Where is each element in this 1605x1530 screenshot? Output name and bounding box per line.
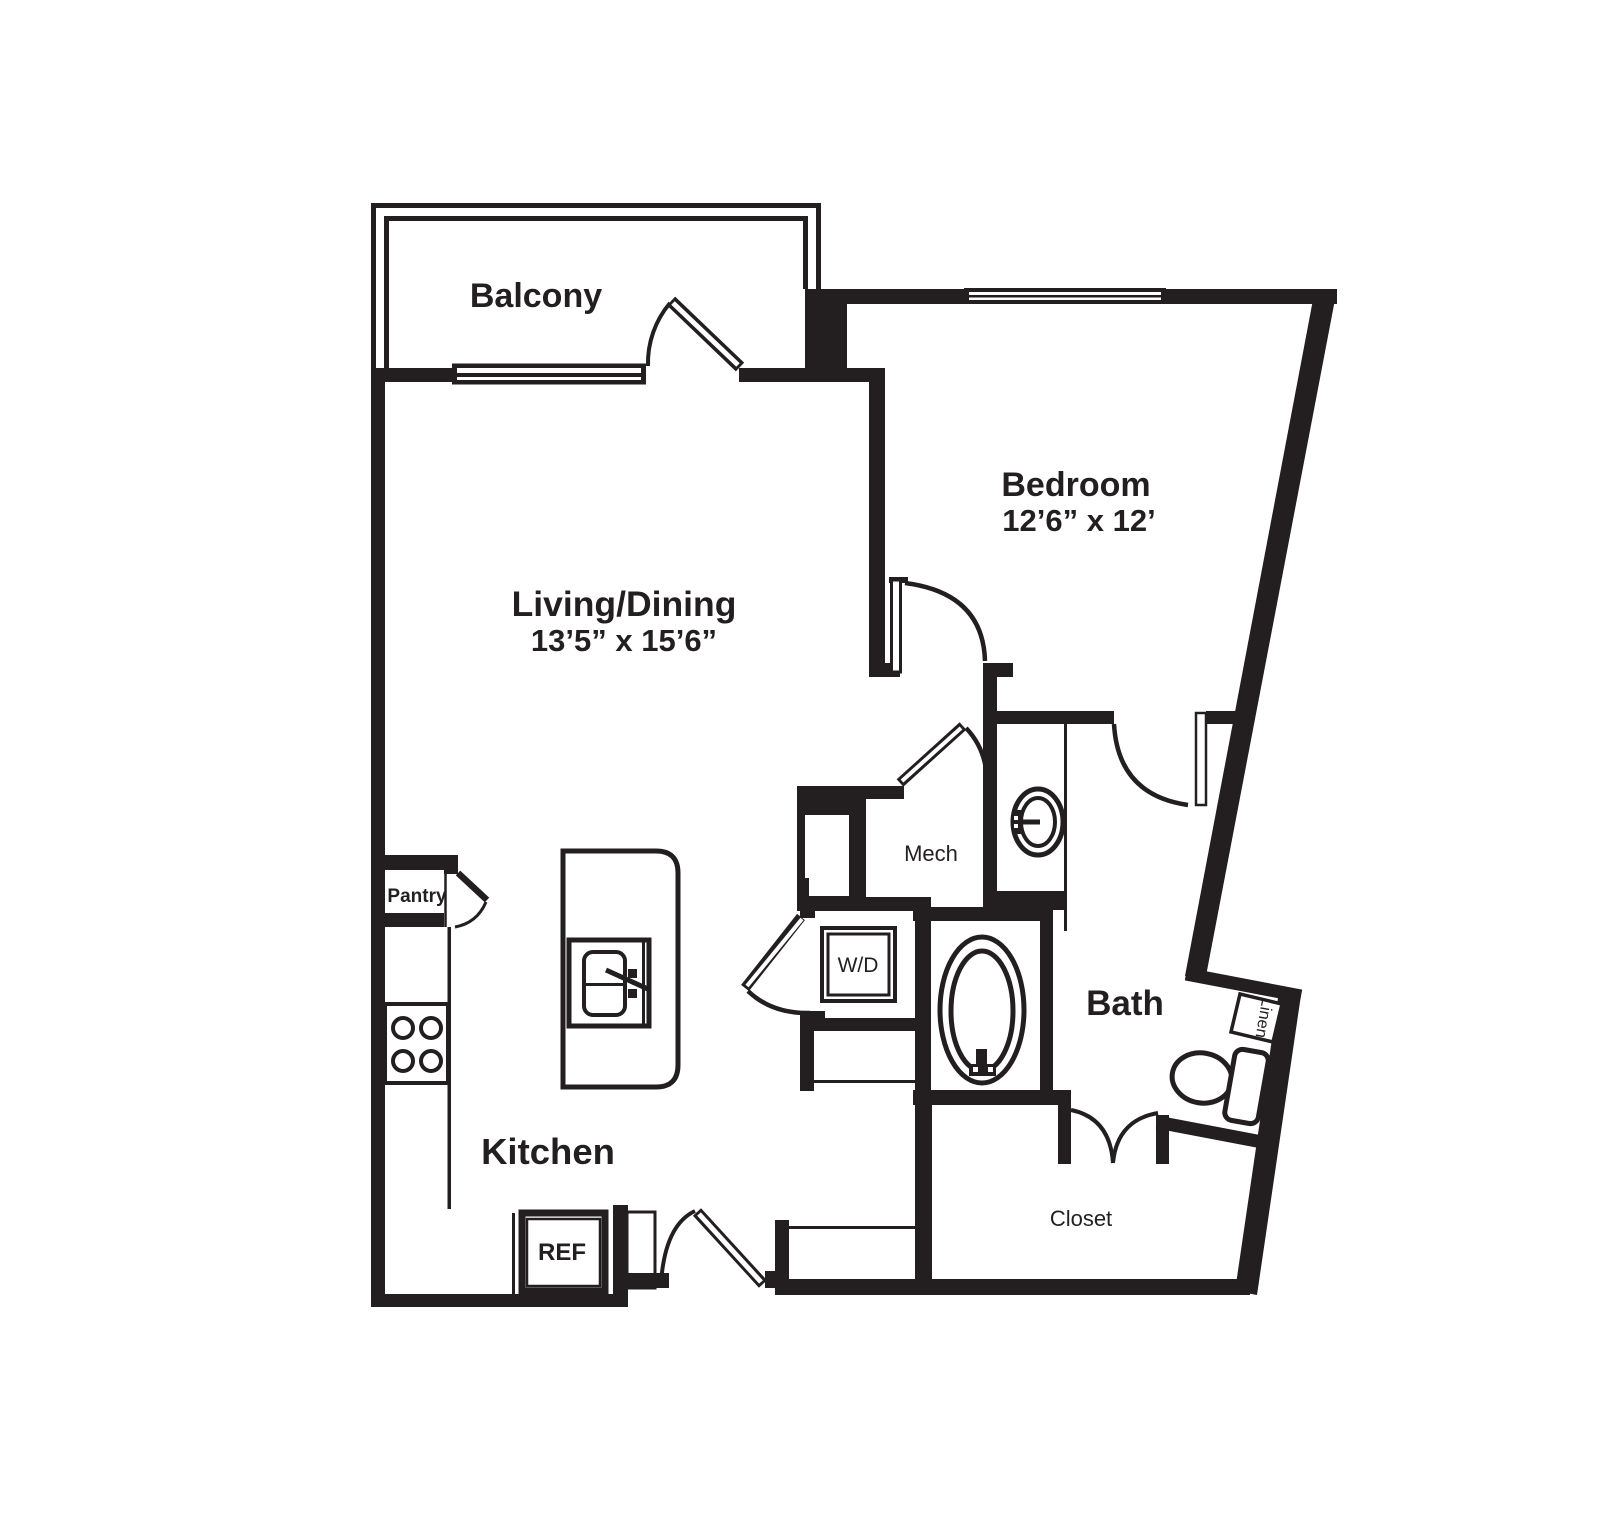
svg-text:13’5” x 15’6”: 13’5” x 15’6” <box>531 623 717 658</box>
svg-text:Kitchen: Kitchen <box>481 1131 615 1172</box>
svg-text:Pantry: Pantry <box>387 886 447 907</box>
svg-text:REF: REF <box>538 1239 586 1266</box>
svg-text:Bath: Bath <box>1086 984 1164 1023</box>
svg-text:Mech: Mech <box>904 841 958 866</box>
svg-text:12’6” x 12’: 12’6” x 12’ <box>1002 503 1155 538</box>
svg-text:Closet: Closet <box>1050 1206 1112 1231</box>
svg-text:Balcony: Balcony <box>470 277 602 315</box>
svg-text:Bedroom: Bedroom <box>1001 466 1150 504</box>
svg-text:W/D: W/D <box>838 954 879 977</box>
svg-text:Living/Dining: Living/Dining <box>512 584 737 624</box>
